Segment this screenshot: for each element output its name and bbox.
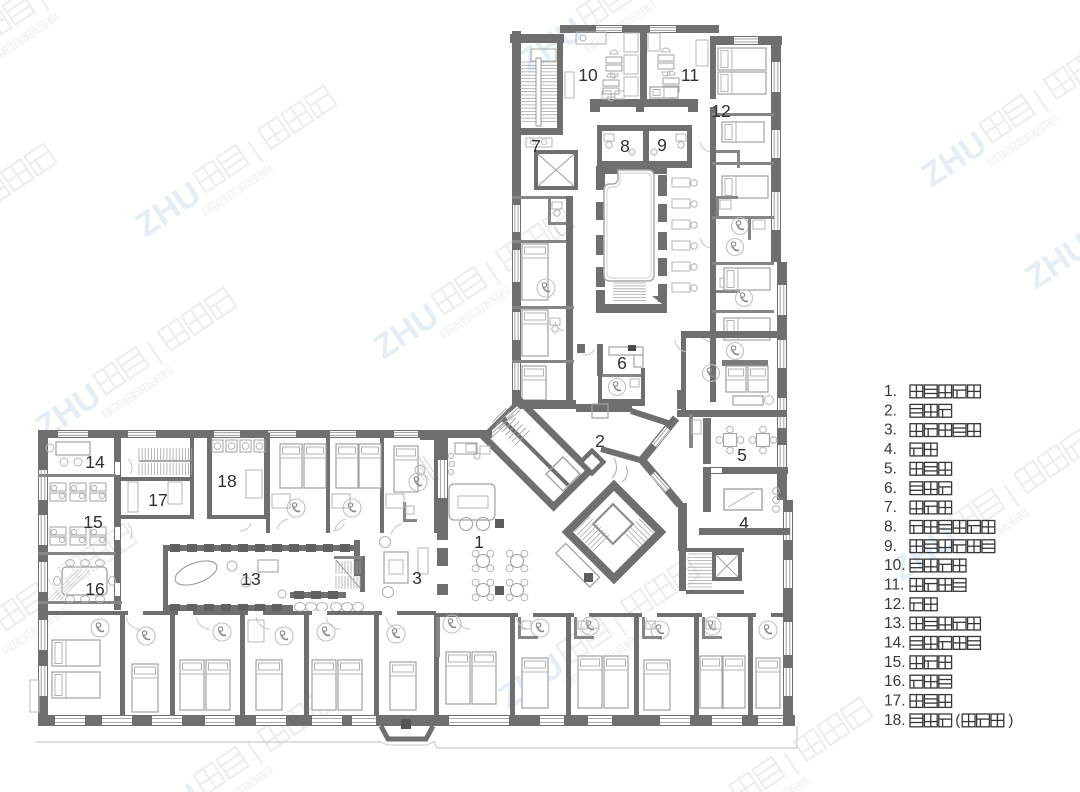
svg-text:9: 9 [657,135,667,155]
svg-text:12.: 12. [884,596,906,613]
svg-text:12: 12 [711,101,730,121]
svg-text:9.: 9. [884,538,897,555]
svg-text:1: 1 [474,532,484,552]
svg-text:13.: 13. [884,615,906,632]
svg-text:16.: 16. [884,673,906,690]
svg-text:17.: 17. [884,693,906,710]
svg-text:): ) [1008,712,1013,729]
svg-text:4.: 4. [884,441,897,458]
svg-text:11: 11 [681,65,699,85]
svg-text:15.: 15. [884,654,906,671]
svg-text:2.: 2. [884,402,897,419]
svg-text:8: 8 [620,136,630,156]
svg-text:1.: 1. [884,383,897,400]
svg-text:3.: 3. [884,422,897,439]
svg-text:(: ( [955,712,960,729]
svg-text:18.: 18. [884,712,906,729]
svg-text:5.: 5. [884,460,897,477]
svg-text:6: 6 [617,353,627,373]
svg-text:7: 7 [531,136,541,156]
svg-text:6.: 6. [884,480,897,497]
svg-text:15: 15 [83,512,102,532]
svg-text:14.: 14. [884,635,906,652]
svg-text:3: 3 [412,568,422,588]
svg-text:16: 16 [85,579,104,599]
svg-text:8.: 8. [884,519,897,536]
svg-text:13: 13 [241,569,260,589]
svg-text:5: 5 [737,445,747,465]
svg-text:11.: 11. [884,577,904,594]
svg-text:10.: 10. [884,557,906,574]
svg-text:17: 17 [148,490,167,510]
svg-text:18: 18 [217,471,236,491]
svg-text:7.: 7. [884,499,897,516]
svg-text:14: 14 [85,452,105,472]
svg-text:10: 10 [578,65,598,85]
